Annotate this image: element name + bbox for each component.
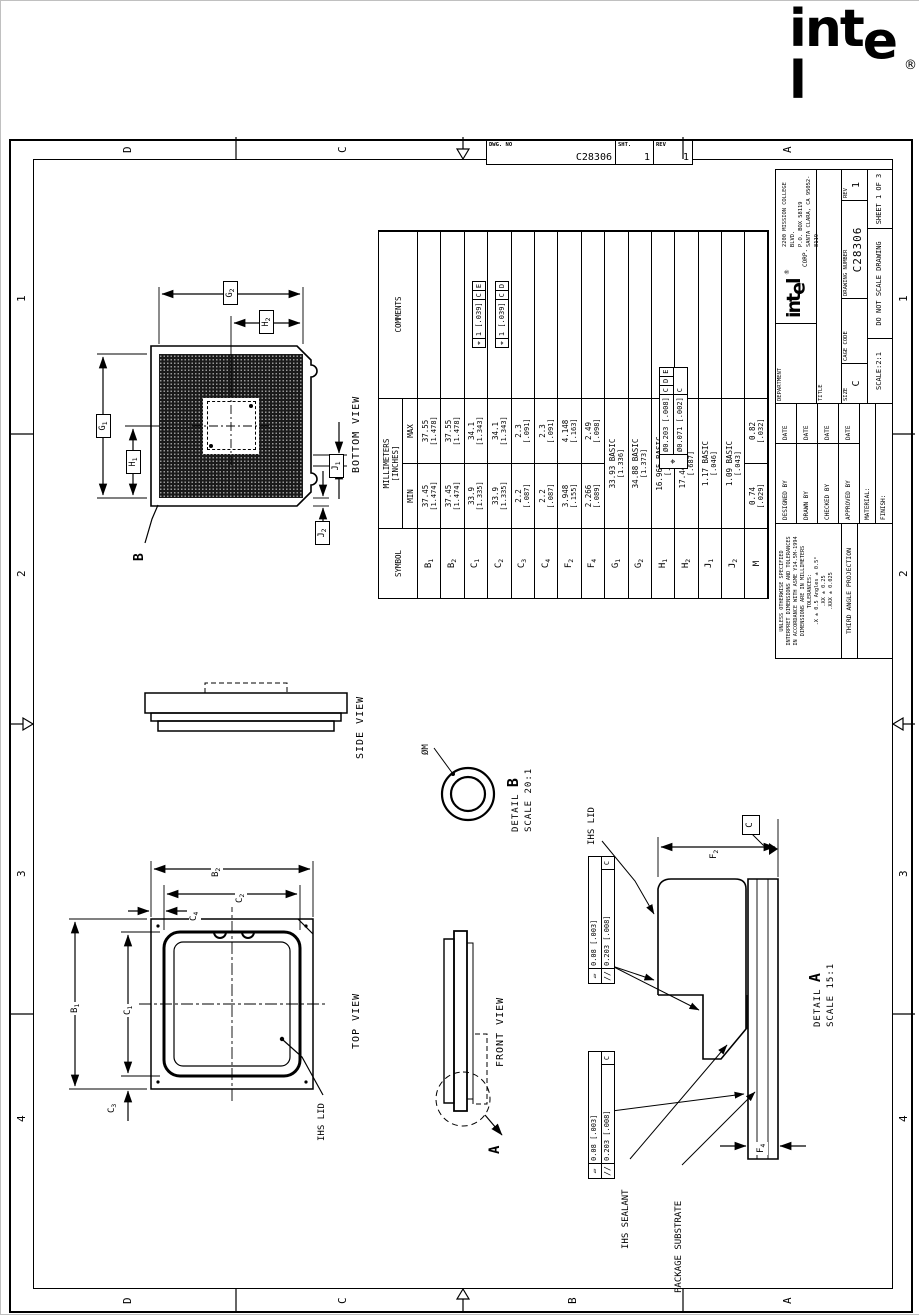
no-scale-cell: DO NOT SCALE DRAWING (868, 228, 892, 338)
titleblock-registered-mark: ® (784, 269, 791, 275)
dim-label-g2: G2 (223, 281, 238, 305)
department-label: DEPARTMENT (777, 368, 783, 401)
dim-label-f4: F4 (756, 1142, 768, 1155)
sheet-cell: SHEET 1 OF 3 (868, 170, 892, 228)
front-view-outline (444, 931, 487, 1111)
drawing-number-value: C28306 (851, 201, 864, 298)
third-angle-label: THIRD ANGLE PROJECTION (842, 523, 858, 658)
dim-label-g1: G1 (96, 414, 111, 438)
scale-cell: SCALE:2:1 (868, 338, 892, 403)
lid-fcf-frame: ▱0.08 [.003]//0.203 [.008]C (588, 856, 615, 984)
dim-label-c3: C3 (107, 1102, 119, 1115)
dimension-table-border (378, 231, 768, 599)
approved-by-cell: APPROVED BY (839, 443, 860, 523)
detail-a-outline (658, 879, 778, 1159)
tolerance-note: UNLESS OTHERWISE SPECIFIEDINTERPRET DIME… (776, 523, 842, 658)
dim-label-c2: C2 (235, 892, 247, 905)
side-view-caption: SIDE VIEW (355, 696, 366, 759)
dim-label-b2: B2 (211, 866, 223, 879)
datum-c-flag: C (742, 815, 760, 835)
title-cell: TITLE (817, 170, 842, 403)
title-block: UNLESS OTHERWISE SPECIFIEDINTERPRET DIME… (775, 169, 893, 659)
dim-label-h1: H1 (126, 450, 141, 474)
dim-label-b1: B1 (70, 1002, 82, 1015)
detail-b-circles (442, 768, 494, 820)
corp-address: 2200 MISSION COLLEGE BLVD.P.O. BOX 58119… (781, 170, 821, 247)
datum-a-label: A (487, 1146, 503, 1154)
cage-code-cell: CAGE CODE (842, 298, 868, 363)
finish-cell: FINISH: (876, 403, 892, 523)
checked-date-cell: DATE (818, 403, 839, 443)
intel-titleblock-logo: intel (785, 279, 804, 318)
registered-mark-icon: ® (904, 58, 917, 73)
datum-b-label: B (132, 553, 147, 561)
front-view-caption: FRONT VIEW (495, 997, 506, 1067)
size-value: C (851, 364, 862, 403)
intel-dropped-e: e (863, 15, 896, 67)
intel-header-logo: intel ® (789, 3, 909, 79)
composite-position-fcf: ⌖Ø0.203 [.008]CDEØ0.071 [.002]C (659, 367, 688, 469)
approved-date-cell: DATE (839, 403, 860, 443)
rev-cell-tb: REV 1 (842, 170, 868, 200)
designed-by-cell: DESIGNED BY (776, 443, 797, 523)
ihs-lid-label-top-view: IHS LID (317, 1103, 327, 1141)
size-cell: SIZE C (842, 363, 868, 403)
ihs-lid-label-detail: IHS LID (587, 807, 597, 845)
projection-symbol-cell (858, 523, 892, 658)
corp-label: CORP. (802, 249, 809, 267)
dim-label-j2: J2 (315, 521, 330, 545)
dim-label-j1: J1 (329, 454, 344, 478)
drawing-page: intel ® DCBADCA43214321 DWG. NO C28306 S… (0, 0, 919, 1315)
drawn-date-cell: DATE (797, 403, 818, 443)
ihs-sealant-label: IHS SEALANT (621, 1189, 631, 1249)
substrate-fcf-frame: ▱0.08 [.003]//0.203 [.008]C (588, 1051, 615, 1179)
rev-value-tb: 1 (851, 170, 862, 200)
title-label: TITLE (818, 384, 824, 401)
package-substrate-label: PACKAGE SUBSTRATE (674, 1201, 684, 1293)
drawing-number-cell: DRAWING NUMBER C28306 (842, 200, 868, 298)
designed-date-cell: DATE (776, 403, 797, 443)
checked-by-cell: CHECKED BY (818, 443, 839, 523)
top-view-caption: TOP VIEW (351, 993, 362, 1049)
dim-label-c4: C4 (189, 910, 201, 923)
corp-cell: intel ® CORP. 2200 MISSION COLLEGE BLVD.… (776, 170, 817, 323)
rotated-sheet-container: DCBADCA43214321 DWG. NO C28306 SHT. 1 RE… (9, 139, 913, 1313)
bottom-view-caption: BOTTOM VIEW (351, 396, 362, 473)
drawn-by-cell: DRAWN BY (797, 443, 818, 523)
department-cell: DEPARTMENT (776, 323, 817, 403)
drawing-sheet: DCBADCA43214321 DWG. NO C28306 SHT. 1 RE… (9, 139, 913, 1313)
dim-label-f2: F2 (709, 848, 721, 861)
pin-diameter-label: ØM (421, 744, 431, 755)
dim-label-h2: H2 (259, 310, 274, 334)
side-view-outline (145, 683, 347, 731)
detail-b-caption: DETAIL B SCALE 20:1 (507, 768, 536, 832)
dim-label-c1: C1 (123, 1004, 135, 1017)
detail-a-caption: DETAIL A SCALE 15:1 (809, 963, 838, 1027)
intel-logo-text: intel (789, 0, 896, 111)
material-cell: MATERIAL: (860, 403, 876, 523)
